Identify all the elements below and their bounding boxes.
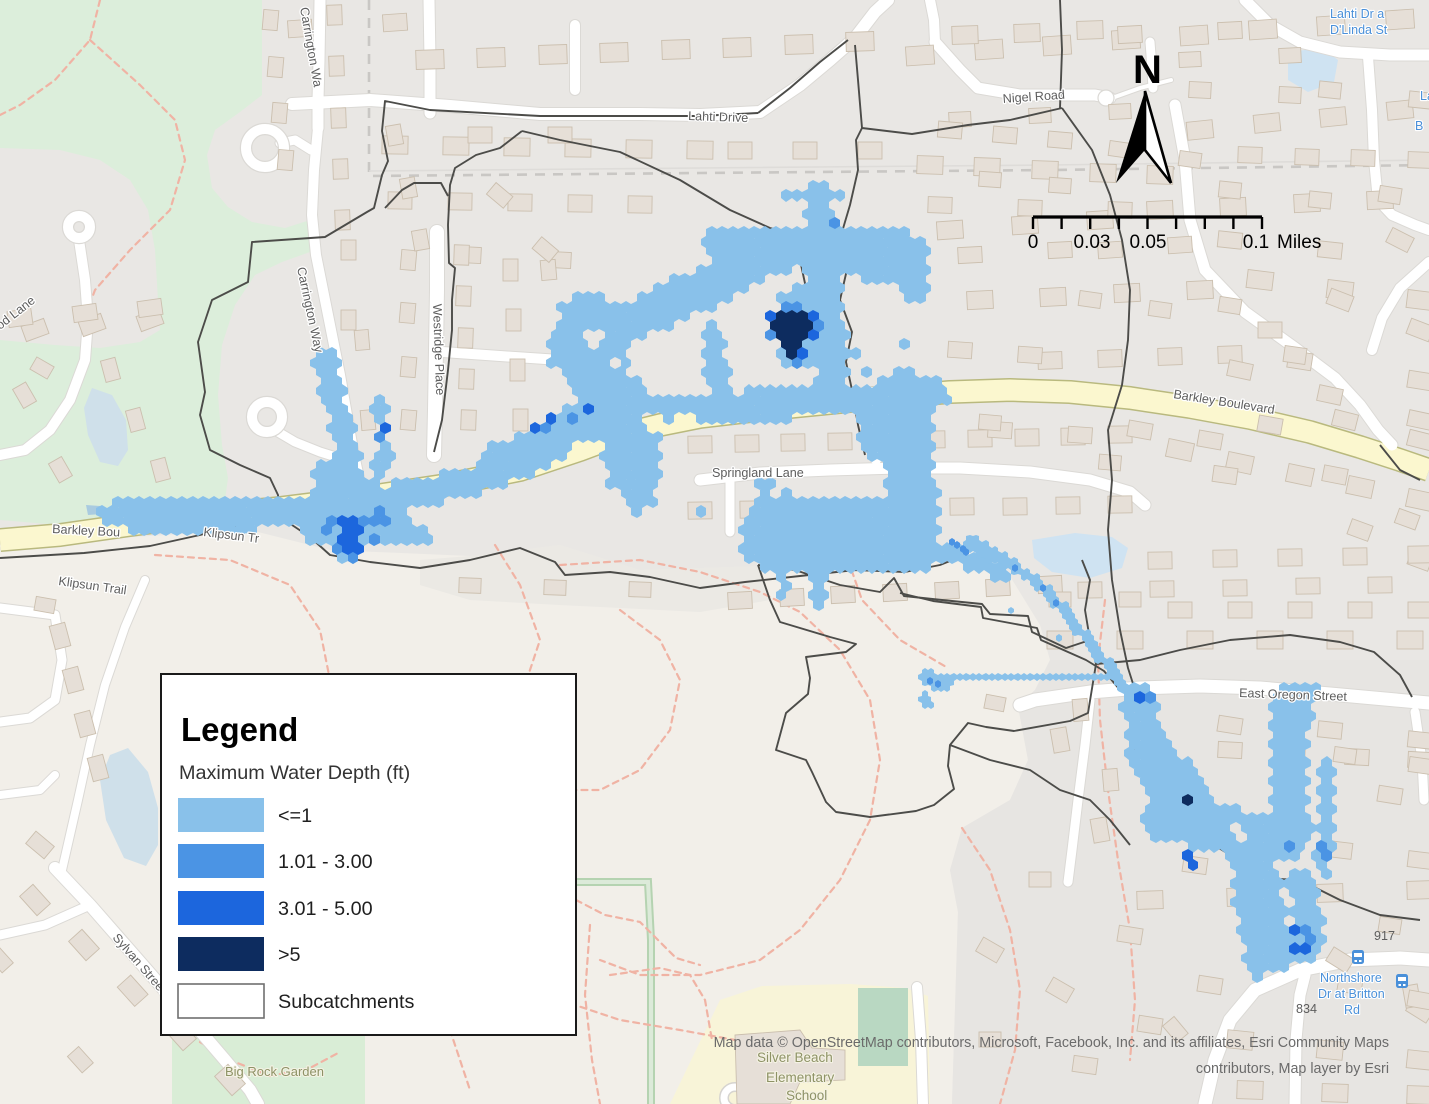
svg-text:0: 0	[1028, 232, 1039, 253]
svg-text:D'Linda St: D'Linda St	[1330, 23, 1388, 37]
svg-text:La: La	[1420, 89, 1429, 103]
svg-text:1.01 - 3.00: 1.01 - 3.00	[278, 851, 373, 873]
svg-text:Lahti Drive: Lahti Drive	[688, 109, 749, 125]
svg-text:3.01 - 5.00: 3.01 - 5.00	[278, 898, 373, 920]
svg-text:N: N	[1133, 48, 1162, 92]
svg-text:B: B	[1415, 119, 1423, 133]
svg-text:834: 834	[1296, 1002, 1317, 1016]
svg-text:<=1: <=1	[278, 805, 312, 827]
svg-text:0.03: 0.03	[1074, 232, 1111, 253]
svg-text:Big Rock Garden: Big Rock Garden	[225, 1064, 324, 1079]
svg-text:Lahti Dr a: Lahti Dr a	[1330, 7, 1384, 21]
svg-text:contributors, Map layer by Esr: contributors, Map layer by Esri	[1196, 1061, 1389, 1077]
svg-text:Rd: Rd	[1344, 1003, 1360, 1017]
svg-text:Legend: Legend	[181, 711, 298, 748]
svg-text:School: School	[786, 1088, 827, 1103]
svg-text:0.1: 0.1	[1243, 232, 1269, 253]
svg-text:>5: >5	[278, 944, 301, 966]
svg-text:Miles: Miles	[1277, 232, 1321, 253]
svg-text:Elementary: Elementary	[766, 1070, 835, 1085]
svg-text:917: 917	[1374, 929, 1395, 943]
svg-text:Northshore: Northshore	[1320, 971, 1382, 985]
svg-text:0.05: 0.05	[1130, 232, 1167, 253]
svg-text:Map data © OpenStreetMap contr: Map data © OpenStreetMap contributors, M…	[714, 1035, 1389, 1051]
svg-text:Maximum Water Depth (ft): Maximum Water Depth (ft)	[179, 762, 410, 784]
svg-text:Silver Beach: Silver Beach	[757, 1050, 833, 1065]
svg-text:Subcatchments: Subcatchments	[278, 991, 414, 1013]
svg-text:Springland Lane: Springland Lane	[712, 466, 804, 480]
svg-text:Dr at Britton: Dr at Britton	[1318, 987, 1385, 1001]
